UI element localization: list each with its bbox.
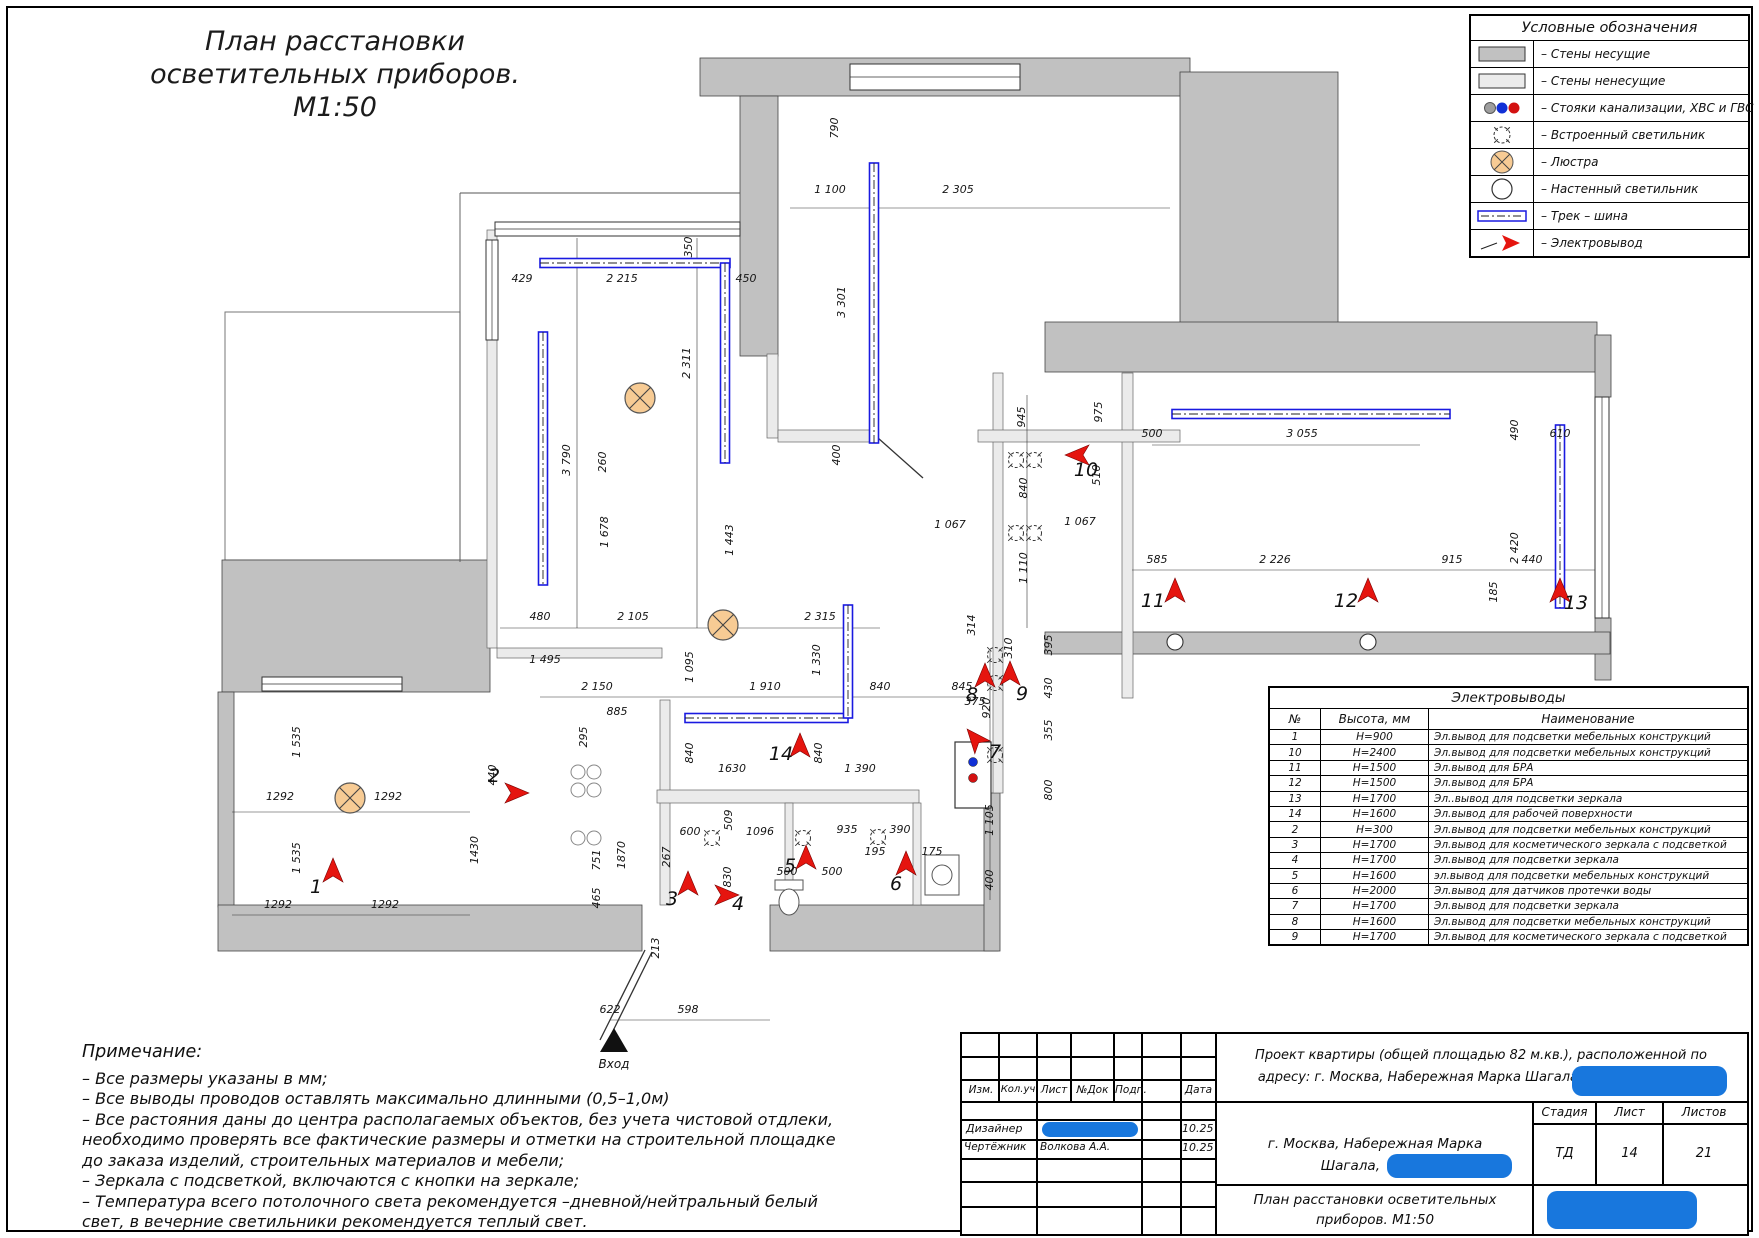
dimension-label: 1 067 bbox=[934, 518, 966, 531]
legend-label: – Стены несущие bbox=[1534, 47, 1650, 61]
outlet-number: 2 bbox=[488, 765, 500, 787]
table-cell: H=1700 bbox=[1321, 899, 1429, 913]
tb-project-line2: адресу: г. Москва, Набережная Марка Шага… bbox=[1220, 1070, 1620, 1085]
outlet-arrow-icon bbox=[678, 871, 698, 895]
wall-bearing bbox=[770, 905, 998, 951]
dimension-label: 800 bbox=[1042, 780, 1055, 801]
legend-label: – Трек – шина bbox=[1534, 209, 1628, 223]
track-icon bbox=[1473, 203, 1531, 229]
table-cell: Эл..вывод для подсветки зеркала bbox=[1429, 793, 1747, 805]
dimension-label: 267 bbox=[660, 847, 673, 868]
stool-icon bbox=[571, 765, 585, 779]
table-cell: 13 bbox=[1270, 792, 1321, 806]
door-leaf bbox=[600, 950, 645, 1040]
table-cell: 7 bbox=[1270, 899, 1321, 913]
note-line: – Все размеры указаны в мм; bbox=[82, 1069, 872, 1090]
note-line: необходимо проверять все фактические раз… bbox=[82, 1130, 872, 1151]
table-cell: Эл.вывод для подсветки мебельных констру… bbox=[1429, 824, 1747, 836]
dimension-label: 450 bbox=[736, 272, 757, 285]
note-line: – Все выводы проводов оставлять максимал… bbox=[82, 1089, 872, 1110]
dimension-label: 195 bbox=[865, 845, 886, 858]
dimension-label: 1 330 bbox=[810, 644, 823, 676]
wall-nonbearing bbox=[1122, 373, 1133, 698]
wall-bearing bbox=[218, 905, 642, 951]
wall-bearing bbox=[218, 692, 234, 907]
legend-item: – Электровывод bbox=[1471, 230, 1748, 256]
tb-col-ndok: №Док bbox=[1072, 1084, 1113, 1096]
dimension-label: 480 bbox=[530, 610, 551, 623]
stool-icon bbox=[571, 831, 585, 845]
stool-icon bbox=[587, 765, 601, 779]
dimension-label: 598 bbox=[678, 1003, 699, 1016]
outlets-table-header: № Высота, мм Наименование bbox=[1270, 709, 1747, 730]
outlet-arrow-icon bbox=[1358, 578, 1378, 602]
table-cell: H=2400 bbox=[1321, 745, 1429, 759]
dimension-label: 1 910 bbox=[749, 680, 781, 693]
tb-col-data: Дата bbox=[1182, 1084, 1215, 1096]
dimension-label: 500 bbox=[822, 865, 843, 878]
wall-nonbearing bbox=[778, 430, 878, 442]
dimension-label: 429 bbox=[512, 272, 533, 285]
tb-sheet-value: 14 bbox=[1597, 1146, 1662, 1161]
note-line: свет, в вечерние светильники рекомендует… bbox=[82, 1212, 872, 1233]
table-cell: эл.вывод для подсветки мебельных констру… bbox=[1429, 870, 1747, 882]
chandelier-icon bbox=[1473, 149, 1531, 175]
table-row: 10H=2400Эл.вывод для подсветки мебельных… bbox=[1270, 745, 1747, 760]
dimension-label: 1 110 bbox=[1017, 552, 1030, 584]
table-cell: H=1700 bbox=[1321, 930, 1429, 944]
outlet-number: 14 bbox=[769, 743, 793, 765]
dimension-label: 314 bbox=[965, 615, 978, 636]
dimension-label: 2 315 bbox=[804, 610, 836, 623]
table-cell: Эл.вывод для рабочей поверхности bbox=[1429, 808, 1747, 820]
dimension-label: 430 bbox=[1042, 678, 1055, 699]
tb-doc-line2: приборов. М1:50 bbox=[1220, 1212, 1530, 1228]
legend-item: – Стояки канализации, ХВС и ГВС bbox=[1471, 95, 1748, 122]
title-block: Изм. Кол.уч Лист №Док Подп. Дата Дизайне… bbox=[960, 1032, 1749, 1236]
page-title: План расстановки осветительных приборов.… bbox=[112, 26, 558, 125]
table-row: 12H=1500Эл.вывод для БРА bbox=[1270, 776, 1747, 791]
dimension-label: 840 bbox=[683, 743, 696, 764]
legend-label: – Люстра bbox=[1534, 155, 1599, 169]
table-row: 6H=2000Эл.вывод для датчиков протечки во… bbox=[1270, 884, 1747, 899]
dimension-label: 975 bbox=[1092, 402, 1105, 423]
drawing-sheet: { "page": { "title_line1": "План расстан… bbox=[0, 0, 1759, 1238]
outlet-number: 6 bbox=[890, 873, 902, 895]
dimension-label: 2 311 bbox=[680, 347, 693, 379]
legend-label: – Стены ненесущие bbox=[1534, 74, 1665, 88]
outlet-number: 11 bbox=[1141, 590, 1165, 612]
dimension-label: 400 bbox=[830, 445, 843, 466]
legend: Условные обозначения – Стены несущие– Ст… bbox=[1469, 14, 1750, 258]
table-row: 13H=1700Эл..вывод для подсветки зеркала bbox=[1270, 792, 1747, 807]
dimension-label: 790 bbox=[828, 118, 841, 139]
dimension-label: 1 100 bbox=[814, 183, 846, 196]
wall-bearing-icon bbox=[1473, 41, 1531, 67]
legend-symbol bbox=[1471, 41, 1534, 67]
table-row: 8H=1600Эл.вывод для подсветки мебельных … bbox=[1270, 915, 1747, 930]
outlet-number: 1 bbox=[310, 876, 322, 898]
dimension-label: 440 bbox=[1522, 553, 1543, 566]
redaction-blob bbox=[1042, 1122, 1138, 1137]
dimension-label: 1096 bbox=[746, 825, 774, 838]
table-cell: Эл.вывод для косметического зеркала с по… bbox=[1429, 839, 1747, 851]
dimension-label: 622 bbox=[600, 1003, 621, 1016]
wall-nonbearing bbox=[913, 803, 921, 905]
table-cell: Эл.вывод для подсветки мебельных констру… bbox=[1429, 747, 1747, 759]
washer-icon bbox=[925, 855, 959, 895]
outlet-arrow-icon bbox=[796, 845, 816, 869]
table-cell: H=900 bbox=[1321, 730, 1429, 744]
dimension-label: 490 bbox=[1508, 420, 1521, 441]
redaction-blob bbox=[1572, 1066, 1727, 1096]
table-cell: H=1700 bbox=[1321, 853, 1429, 867]
tb-col-izm: Изм. bbox=[964, 1084, 998, 1096]
dimension-label: 400 bbox=[983, 870, 996, 891]
legend-symbol bbox=[1471, 68, 1534, 94]
wall-bearing bbox=[222, 560, 490, 692]
legend-rows: – Стены несущие– Стены ненесущие– Стояки… bbox=[1471, 41, 1748, 256]
col-header-name: Наименование bbox=[1429, 712, 1747, 726]
table-cell: H=1600 bbox=[1321, 869, 1429, 883]
table-cell: 10 bbox=[1270, 745, 1321, 759]
table-row: 11H=1500Эл.вывод для БРА bbox=[1270, 761, 1747, 776]
table-row: 3H=1700Эл.вывод для косметического зерка… bbox=[1270, 838, 1747, 853]
table-row: 2H=300Эл.вывод для подсветки мебельных к… bbox=[1270, 822, 1747, 837]
dimension-label: 1292 bbox=[371, 898, 399, 911]
col-header-height: Высота, мм bbox=[1321, 709, 1429, 729]
wall-bearing bbox=[740, 96, 778, 356]
dimension-label: 175 bbox=[922, 845, 943, 858]
legend-symbol bbox=[1471, 176, 1534, 202]
wall-bearing bbox=[1180, 72, 1338, 334]
table-cell: Эл.вывод для БРА bbox=[1429, 762, 1747, 774]
notes-title: Примечание: bbox=[82, 1042, 872, 1063]
redaction-blob bbox=[1547, 1191, 1697, 1229]
dimension-label: 915 bbox=[1442, 553, 1463, 566]
table-cell: Эл.вывод для датчиков протечки воды bbox=[1429, 885, 1747, 897]
outlets-table-body: 1H=900Эл.вывод для подсветки мебельных к… bbox=[1270, 730, 1747, 944]
table-cell: Эл.вывод для подсветки мебельных констру… bbox=[1429, 916, 1747, 928]
outlets-table-title: Электровыводы bbox=[1270, 688, 1747, 709]
table-cell: 2 bbox=[1270, 822, 1321, 836]
table-cell: 6 bbox=[1270, 884, 1321, 898]
dimension-label: 1 067 bbox=[1064, 515, 1096, 528]
outlet-number: 10 bbox=[1074, 459, 1098, 481]
page-title-line: План расстановки bbox=[112, 26, 558, 59]
tb-sheets-value: 21 bbox=[1664, 1146, 1744, 1161]
riser-dot bbox=[969, 758, 978, 767]
recessed-icon bbox=[1473, 122, 1531, 148]
outlet-number: 8 bbox=[966, 684, 978, 706]
tb-col-koluch: Кол.уч bbox=[1000, 1084, 1036, 1095]
dimension-label: 2 215 bbox=[606, 272, 638, 285]
dimension-label: 185 bbox=[1487, 582, 1500, 603]
legend-item: – Стены ненесущие bbox=[1471, 68, 1748, 95]
tb-project-line1: Проект квартиры (общей площадью 82 м.кв.… bbox=[1220, 1048, 1742, 1063]
wall-nonbearing-icon bbox=[1473, 68, 1531, 94]
outlet-icon bbox=[1473, 230, 1531, 256]
dimension-label: 945 bbox=[1015, 407, 1028, 428]
tb-sheet-label: Лист bbox=[1597, 1105, 1662, 1119]
note-line: до заказа изделий, строительных материал… bbox=[82, 1151, 872, 1172]
dimension-label: 310 bbox=[1002, 638, 1015, 659]
dimension-label: 295 bbox=[577, 727, 590, 748]
page-title-line: М1:50 bbox=[112, 92, 558, 125]
dimension-label: 465 bbox=[590, 888, 603, 909]
tb-sheets-label: Листов bbox=[1664, 1105, 1744, 1119]
dimension-label: 2 305 bbox=[942, 183, 974, 196]
note-line: – Зеркала с подсветкой, включаются с кно… bbox=[82, 1171, 872, 1192]
legend-label: – Встроенный светильник bbox=[1534, 128, 1705, 142]
dimension-label: 350 bbox=[682, 237, 695, 258]
door-leaf bbox=[878, 438, 923, 478]
dimension-label: 1630 bbox=[718, 762, 746, 775]
table-cell: 9 bbox=[1270, 930, 1321, 944]
tb-stage-value: ТД bbox=[1534, 1146, 1595, 1161]
wall-nonbearing bbox=[767, 354, 778, 438]
wall-bearing bbox=[1595, 335, 1611, 397]
dimension-label: 1292 bbox=[266, 790, 294, 803]
outlet-number: 7 bbox=[989, 741, 1001, 763]
legend-item: – Настенный светильник bbox=[1471, 176, 1748, 203]
tb-doc-line1: План расстановки осветительных bbox=[1220, 1192, 1530, 1208]
legend-symbol bbox=[1471, 95, 1534, 121]
dimension-label: 840 bbox=[1017, 478, 1030, 499]
riser-dot bbox=[969, 774, 978, 783]
dimension-label: 390 bbox=[890, 823, 911, 836]
dimension-label: 2 226 bbox=[1259, 553, 1291, 566]
table-cell: H=1600 bbox=[1321, 807, 1429, 821]
dimension-label: 610 bbox=[1550, 427, 1571, 440]
table-cell: Эл.вывод для подсветки зеркала bbox=[1429, 854, 1747, 866]
tb-designer-date: 10.25 bbox=[1182, 1122, 1215, 1135]
col-header-number: № bbox=[1270, 709, 1321, 729]
wall-bearing bbox=[1045, 322, 1597, 372]
dimension-label: 1 105 bbox=[983, 804, 996, 836]
dimension-label: 260 bbox=[596, 452, 609, 473]
table-cell: Эл.вывод для подсветки зеркала bbox=[1429, 900, 1747, 912]
table-cell: Эл.вывод для подсветки мебельных констру… bbox=[1429, 731, 1747, 743]
table-row: 7H=1700Эл.вывод для подсветки зеркала bbox=[1270, 899, 1747, 914]
outlet-number: 13 bbox=[1564, 592, 1588, 614]
table-row: 14H=1600Эл.вывод для рабочей поверхности bbox=[1270, 807, 1747, 822]
dimension-label: 751 bbox=[590, 850, 603, 871]
toilet-icon bbox=[779, 889, 799, 915]
legend-symbol bbox=[1471, 203, 1534, 229]
table-cell: H=1600 bbox=[1321, 915, 1429, 929]
dimension-label: 840 bbox=[812, 743, 825, 764]
dimension-label: 1 443 bbox=[723, 524, 736, 556]
dimension-label: 395 bbox=[1042, 635, 1055, 656]
table-cell: 4 bbox=[1270, 853, 1321, 867]
table-row: 5H=1600эл.вывод для подсветки мебельных … bbox=[1270, 869, 1747, 884]
risers-icon bbox=[1473, 95, 1531, 121]
dimension-label: 1 535 bbox=[290, 842, 303, 874]
legend-item: – Люстра bbox=[1471, 149, 1748, 176]
table-row: 4H=1700Эл.вывод для подсветки зеркала bbox=[1270, 853, 1747, 868]
outline-rect bbox=[225, 312, 460, 560]
dimension-label: 1 678 bbox=[598, 516, 611, 548]
table-cell: 11 bbox=[1270, 761, 1321, 775]
table-cell: H=2000 bbox=[1321, 884, 1429, 898]
table-cell: 3 bbox=[1270, 838, 1321, 852]
outlet-number: 12 bbox=[1334, 590, 1358, 612]
tb-designer-role: Дизайнер bbox=[966, 1122, 1036, 1135]
dimension-label: 840 bbox=[870, 680, 891, 693]
legend-symbol bbox=[1471, 149, 1534, 175]
outlets-table: Электровыводы № Высота, мм Наименование … bbox=[1268, 686, 1749, 946]
legend-item: – Трек – шина bbox=[1471, 203, 1748, 230]
outlet-arrow-icon bbox=[505, 783, 529, 803]
note-line: – Температура всего потолочного света ре… bbox=[82, 1192, 872, 1213]
tb-stage-label: Стадия bbox=[1534, 1105, 1595, 1119]
dimension-label: 3 790 bbox=[560, 444, 573, 476]
notes-lines: – Все размеры указаны в мм;– Все выводы … bbox=[82, 1069, 872, 1233]
stool-icon bbox=[587, 783, 601, 797]
dimension-label: 2 150 bbox=[581, 680, 613, 693]
outlet-number: 3 bbox=[666, 888, 678, 910]
dimension-label: 2 420 bbox=[1508, 532, 1521, 564]
outlet-number: 9 bbox=[1016, 683, 1028, 705]
legend-item: – Встроенный светильник bbox=[1471, 122, 1748, 149]
dimension-label: 1292 bbox=[264, 898, 292, 911]
table-cell: Эл.вывод для БРА bbox=[1429, 777, 1747, 789]
redaction-blob bbox=[1387, 1154, 1512, 1178]
wall-nonbearing bbox=[657, 790, 919, 803]
dimension-label: 1430 bbox=[468, 836, 481, 864]
table-cell: H=1500 bbox=[1321, 776, 1429, 790]
tb-draftsman-date: 10.25 bbox=[1182, 1141, 1215, 1154]
dimension-label: 885 bbox=[607, 705, 628, 718]
tb-draftsman-name: Волкова А.А. bbox=[1040, 1141, 1140, 1153]
wall-lamp-icon bbox=[1167, 634, 1183, 650]
table-cell: 1 bbox=[1270, 730, 1321, 744]
table-cell: 8 bbox=[1270, 915, 1321, 929]
dimension-label: 1 535 bbox=[290, 726, 303, 758]
page-title-line: осветительных приборов. bbox=[112, 59, 558, 92]
wall-nonbearing bbox=[497, 648, 662, 658]
outlet-number: 5 bbox=[784, 855, 796, 877]
dimension-label: 1 495 bbox=[529, 653, 561, 666]
legend-label: – Настенный светильник bbox=[1534, 182, 1698, 196]
dimension-label: 3 301 bbox=[835, 286, 848, 318]
table-cell: H=1700 bbox=[1321, 838, 1429, 852]
table-cell: Эл.вывод для косметического зеркала с по… bbox=[1429, 931, 1747, 943]
wall-lamp-icon bbox=[1473, 176, 1531, 202]
dimension-label: 1 390 bbox=[844, 762, 876, 775]
table-row: 9H=1700Эл.вывод для косметического зерка… bbox=[1270, 930, 1747, 944]
wall-lamp-icon bbox=[1360, 634, 1376, 650]
dimension-label: 355 bbox=[1042, 720, 1055, 741]
dimension-label: 500 bbox=[1142, 427, 1163, 440]
table-row: 1H=900Эл.вывод для подсветки мебельных к… bbox=[1270, 730, 1747, 745]
dimension-label: 600 bbox=[680, 825, 701, 838]
legend-symbol bbox=[1471, 122, 1534, 148]
legend-title: Условные обозначения bbox=[1471, 16, 1748, 41]
dimension-label: 935 bbox=[837, 823, 858, 836]
tb-col-podp: Подп. bbox=[1115, 1084, 1141, 1096]
dimension-label: 1870 bbox=[615, 841, 628, 869]
table-cell: 5 bbox=[1270, 869, 1321, 883]
tb-draftsman-role: Чертёжник bbox=[964, 1141, 1036, 1153]
table-cell: H=1500 bbox=[1321, 761, 1429, 775]
legend-label: – Стояки канализации, ХВС и ГВС bbox=[1534, 101, 1754, 115]
dimension-label: 830 bbox=[721, 867, 734, 888]
dimension-label: 509 bbox=[722, 810, 735, 831]
dimension-label: 2 105 bbox=[617, 610, 649, 623]
notes: Примечание: – Все размеры указаны в мм;–… bbox=[82, 1042, 872, 1233]
outlet-number: 4 bbox=[732, 893, 744, 915]
dimension-label: 213 bbox=[649, 938, 662, 959]
tb-address-line2: Шагала, bbox=[1220, 1158, 1380, 1174]
dimension-label: 1 095 bbox=[683, 651, 696, 683]
dimension-label: 585 bbox=[1147, 553, 1168, 566]
tb-col-list: Лист bbox=[1038, 1084, 1070, 1096]
dimension-label: 1292 bbox=[374, 790, 402, 803]
tb-address-line1: г. Москва, Набережная Марка bbox=[1220, 1136, 1530, 1152]
table-cell: H=1700 bbox=[1321, 792, 1429, 806]
stool-icon bbox=[571, 783, 585, 797]
dimension-label: 3 055 bbox=[1286, 427, 1318, 440]
stool-icon bbox=[587, 831, 601, 845]
table-cell: 14 bbox=[1270, 807, 1321, 821]
note-line: – Все растояния даны до центра располага… bbox=[82, 1110, 872, 1131]
outlet-arrow-icon bbox=[323, 858, 343, 882]
legend-symbol bbox=[1471, 230, 1534, 256]
outlet-arrow-icon bbox=[1165, 578, 1185, 602]
legend-item: – Стены несущие bbox=[1471, 41, 1748, 68]
legend-label: – Электровывод bbox=[1534, 236, 1643, 250]
table-cell: H=300 bbox=[1321, 822, 1429, 836]
table-cell: 12 bbox=[1270, 776, 1321, 790]
